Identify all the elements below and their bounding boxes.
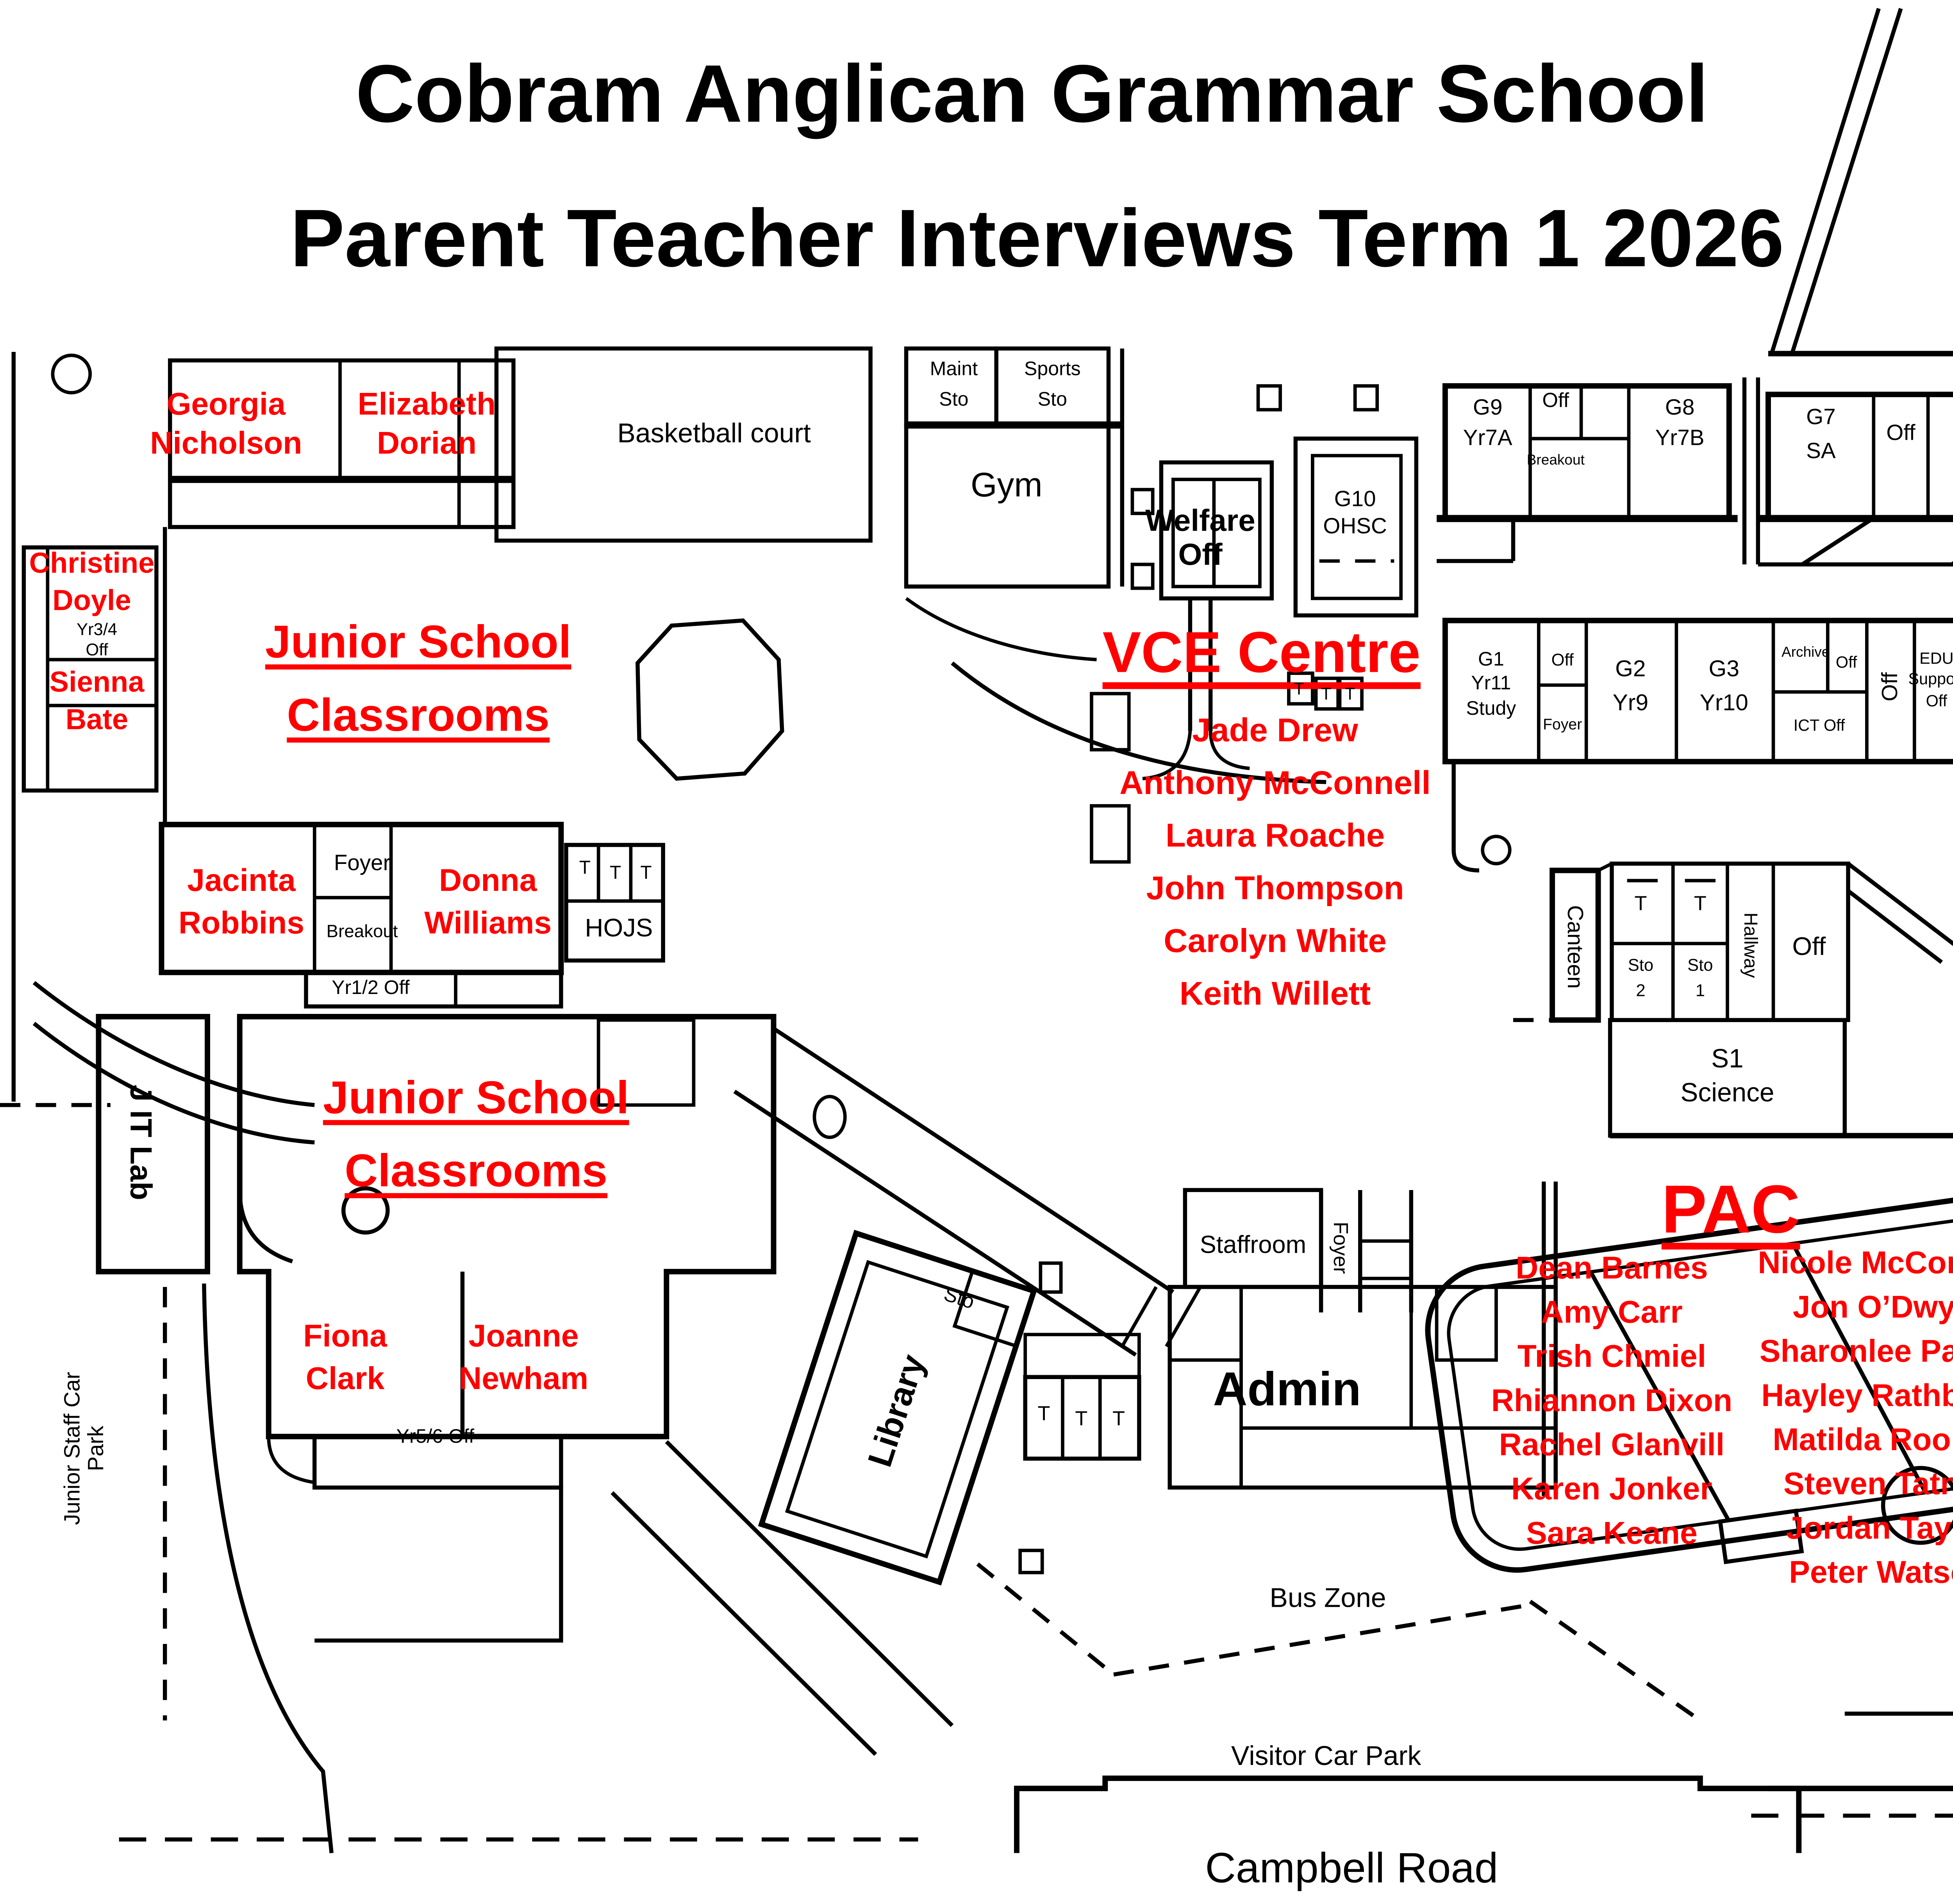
teacher-name: Dean Barnes [1491, 1246, 1732, 1290]
teacher-name: Matilda Rooney [1758, 1418, 1953, 1462]
teacher-name: Hayley Rathbone [1758, 1374, 1953, 1418]
room-g2-label: G2 Yr9 [1605, 652, 1656, 721]
pac-path-dashed [1530, 1601, 1700, 1720]
teacher-name: Carolyn White [1119, 916, 1431, 969]
heading-vce-centre: VCE Centre [1103, 623, 1421, 686]
room-hojs-label: HOJS [585, 916, 653, 944]
teacher-name: Laura Roache [1119, 811, 1431, 864]
school-map: Cobram Anglican Grammar School Parent Te… [0, 0, 1953, 1904]
visitor-car-park-label: Visitor Car Park [1231, 1743, 1421, 1773]
map-title-line2: Parent Teacher Interviews Term 1 2026 [290, 196, 1784, 286]
room-edu-support-off-label: EDU Support Off [1903, 650, 1953, 713]
room-jr-foyer-label: Foyer [334, 851, 391, 876]
room-g1-foyer-label: Foyer [1543, 717, 1582, 734]
heading-pac: PAC [1662, 1173, 1800, 1248]
room-s1-science-label: S1 Science [1676, 1044, 1778, 1112]
bus-zone-label: Bus Zone [1269, 1585, 1386, 1615]
map-title-line1: Cobram Anglican Grammar School [355, 52, 1708, 142]
room-sto-2-label: Sto 2 [1622, 954, 1660, 1005]
canteen-t-room-2: T [1694, 893, 1707, 915]
room-g1-label: G1 Yr11 Study [1460, 648, 1522, 722]
jr-t-room-1: T [579, 858, 591, 879]
teacher-name: Jon O’Dwyer [1758, 1285, 1953, 1329]
teacher-name: Jade Drew [1119, 705, 1431, 758]
teacher-name: Rhiannon Dixon [1491, 1379, 1732, 1423]
teacher-name: Keith Willett [1119, 969, 1431, 1022]
campbell-road-label: Campbell Road [1205, 1847, 1498, 1893]
room-admin-label: Admin [1213, 1365, 1361, 1417]
teacher-name: Jordan Taylor [1758, 1506, 1953, 1551]
teacher-elizabeth-dorian: Elizabeth Dorian [338, 384, 515, 462]
top-right-driveway [1768, 9, 1953, 592]
room-yr34-off-label: Yr3/4 Off [68, 621, 126, 660]
room-g10-ohsc-label: G10 OHSC [1319, 486, 1391, 541]
admin-t-room-3: T [1112, 1408, 1125, 1431]
teacher-fiona-clark: Fiona Clark [293, 1316, 398, 1401]
room-ict-off-label: ICT Off [1794, 719, 1845, 736]
room-basketball-court-label: Basketball court [617, 420, 811, 450]
room-yr12-off-label: Yr1/2 Off [332, 979, 409, 1000]
teacher-name: Sharonlee Parker [1758, 1329, 1953, 1374]
teacher-name: John Thompson [1119, 864, 1431, 916]
room-g1-off-label: Off [1551, 652, 1574, 671]
pac-teacher-list-right: Nicole McConnellJon O’DwyerSharonlee Par… [1758, 1241, 1953, 1595]
teacher-sienna-bate: Sienna Bate [32, 665, 162, 740]
teacher-name: Sara Keane [1491, 1511, 1732, 1556]
vce-t-room-2: T [1321, 686, 1332, 705]
room-g9-off-label: Off [1542, 390, 1569, 412]
room-g3-label: G3 Yr10 [1693, 652, 1755, 721]
room-canteen-label: Canteen [1562, 905, 1587, 989]
teacher-christine-doyle: Christine Doyle [14, 546, 170, 621]
room-jr-breakout-label: Breakout [327, 924, 398, 943]
jr-t-room-3: T [640, 864, 652, 884]
g7-g6-block [1744, 377, 1953, 564]
teacher-name: Nicole McConnell [1758, 1241, 1953, 1285]
teacher-name: Rachel Glanvill [1491, 1423, 1732, 1467]
teacher-name: Peter Watson [1758, 1551, 1953, 1595]
room-off-vertical-label: Off [1878, 672, 1903, 701]
room-g8-label: G8 Yr7B [1646, 393, 1714, 454]
room-g7-off-label: Off [1886, 421, 1915, 446]
teacher-name: Steven Tatnall [1758, 1462, 1953, 1506]
room-hallway-label: Hallway [1739, 912, 1760, 978]
teacher-georgia-nicholson: Georgia Nicholson [138, 384, 315, 462]
room-hall-off-label: Off [1792, 935, 1826, 963]
canteen-t-room-1: T [1634, 893, 1647, 915]
room-admin-foyer-label: Foyer [1328, 1222, 1351, 1274]
jr-t-room-2: T [610, 864, 621, 884]
admin-t-room-1: T [1038, 1403, 1050, 1426]
bottom-car-park-lines [1017, 1714, 1953, 1853]
room-sports-sto-label: Sports Sto [1015, 355, 1090, 417]
room-g7-label: G7 SA [1797, 400, 1845, 467]
admin-t-room-2: T [1075, 1408, 1087, 1431]
teacher-name: Anthony McConnell [1119, 758, 1431, 811]
pac-teacher-list-left: Dean BarnesAmy CarrTrish ChmielRhiannon … [1491, 1246, 1732, 1556]
teacher-name: Trish Chmiel [1491, 1335, 1732, 1379]
teacher-donna-williams: Donna Williams [410, 860, 566, 945]
room-staffroom-label: Staffroom [1200, 1234, 1307, 1261]
heading-junior-school-upper: Junior School Classrooms [214, 607, 622, 753]
teacher-name: Karen Jonker [1491, 1467, 1732, 1511]
room-j-it-lab-label: J IT Lab [123, 1085, 156, 1200]
room-gym-label: Gym [971, 468, 1043, 505]
room-sto-1-label: Sto 1 [1682, 954, 1719, 1005]
vce-t-room-3: T [1345, 686, 1355, 705]
teacher-name: Amy Carr [1491, 1290, 1732, 1335]
page: Cobram Anglican Grammar School Parent Te… [0, 0, 1953, 1904]
room-welfare-off-label: Welfare Off [1137, 505, 1263, 573]
room-maint-sto-label: Maint Sto [920, 355, 988, 417]
room-archive-off-label: Off [1836, 656, 1857, 673]
teacher-joanne-newham: Joanne Newham [450, 1316, 596, 1401]
room-g9-label: G9 Yr7A [1457, 393, 1518, 454]
junior-staff-car-park-label: Junior Staff Car Park [61, 1360, 109, 1537]
vce-t-room-1: T [1294, 681, 1304, 700]
room-yr56-off-label: Yr5/6 Off [396, 1428, 474, 1449]
heading-junior-school-lower: Junior School Classrooms [272, 1062, 680, 1209]
room-g9-breakout-label: Breakout [1527, 453, 1585, 469]
teacher-jacinta-robbins: Jacinta Robbins [170, 860, 313, 945]
vce-teacher-list: Jade DrewAnthony McConnellLaura RoacheJo… [1119, 705, 1431, 1022]
room-archive-label: Archive [1782, 645, 1830, 661]
